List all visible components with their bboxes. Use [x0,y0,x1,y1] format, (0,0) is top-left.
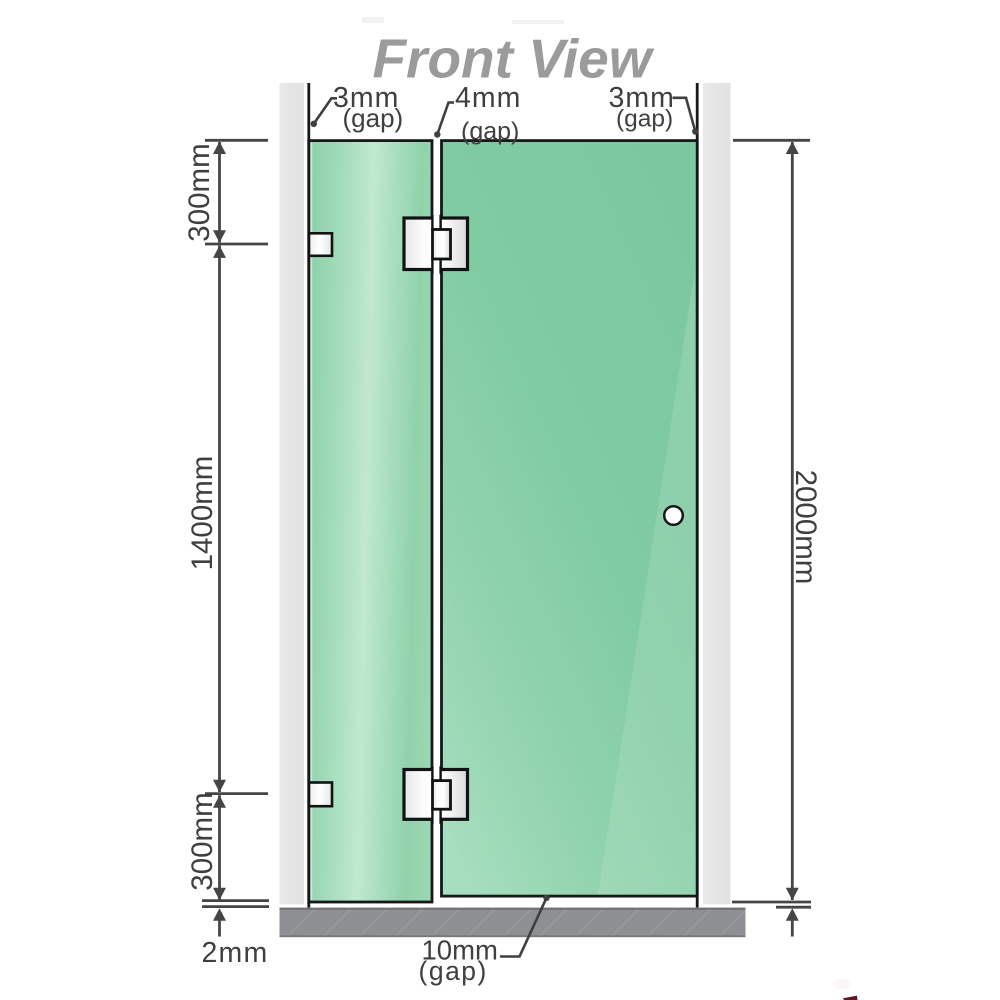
svg-text:300mm: 300mm [186,792,219,890]
svg-text:4mm: 4mm [455,82,521,114]
svg-text:300mm: 300mm [183,143,216,241]
svg-text:1400mm: 1400mm [186,456,219,571]
svg-text:(gap): (gap) [616,106,673,133]
svg-text:2000mm: 2000mm [789,470,822,585]
svg-text:2mm: 2mm [202,937,269,969]
svg-text:(gap): (gap) [419,956,488,986]
svg-text:Front View: Front View [372,28,654,90]
svg-text:(gap): (gap) [461,118,519,146]
svg-text:(gap): (gap) [343,103,404,133]
